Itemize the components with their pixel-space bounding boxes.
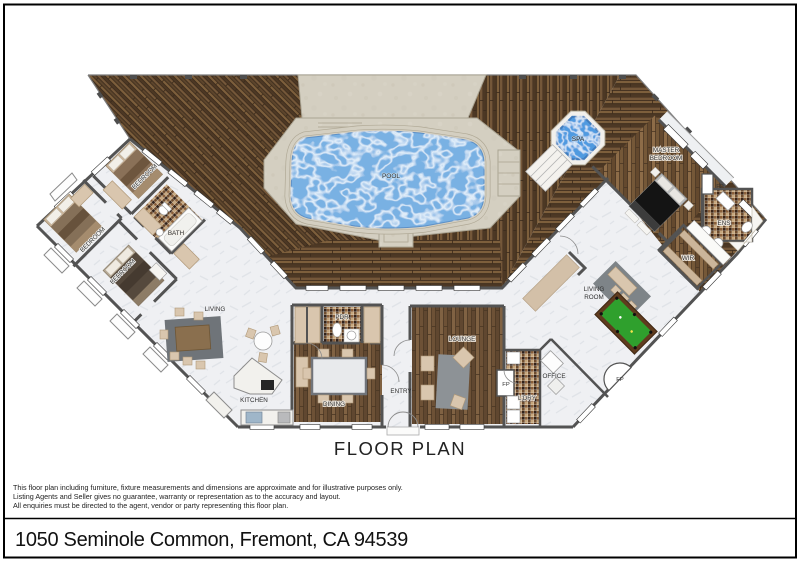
svg-text:PDR: PDR bbox=[335, 314, 349, 321]
svg-text:L'DRY: L'DRY bbox=[518, 395, 537, 402]
svg-text:KITCHEN: KITCHEN bbox=[240, 397, 268, 404]
svg-text:1050 Seminole Common, Fremont,: 1050 Seminole Common, Fremont, CA 94539 bbox=[15, 529, 408, 551]
svg-text:ROOM: ROOM bbox=[584, 294, 604, 301]
svg-text:BEDROOM: BEDROOM bbox=[650, 155, 683, 162]
svg-text:ENS: ENS bbox=[718, 220, 731, 227]
svg-text:OFFICE: OFFICE bbox=[542, 373, 565, 380]
svg-text:LIVING: LIVING bbox=[584, 286, 605, 293]
svg-text:FP: FP bbox=[616, 377, 624, 383]
svg-text:SPA: SPA bbox=[572, 136, 585, 143]
svg-text:FP: FP bbox=[502, 382, 510, 388]
svg-text:LOUNGE: LOUNGE bbox=[449, 336, 476, 343]
svg-text:This floor plan including furn: This floor plan including furniture, fix… bbox=[13, 483, 403, 492]
svg-text:DINING: DINING bbox=[323, 401, 345, 408]
svg-text:WIR: WIR bbox=[682, 255, 695, 262]
svg-text:FP: FP bbox=[716, 184, 724, 190]
svg-text:ENTRY: ENTRY bbox=[390, 388, 412, 395]
svg-text:POOL: POOL bbox=[382, 173, 400, 180]
svg-text:LIVING: LIVING bbox=[205, 306, 226, 313]
svg-text:FLOOR PLAN: FLOOR PLAN bbox=[334, 438, 466, 459]
svg-text:Listing Agents and Seller give: Listing Agents and Seller gives no guara… bbox=[13, 492, 341, 501]
svg-text:BATH: BATH bbox=[168, 230, 185, 237]
svg-text:MASTER: MASTER bbox=[653, 147, 680, 154]
svg-text:All enquiries must be directed: All enquiries must be directed to the ag… bbox=[13, 501, 288, 510]
